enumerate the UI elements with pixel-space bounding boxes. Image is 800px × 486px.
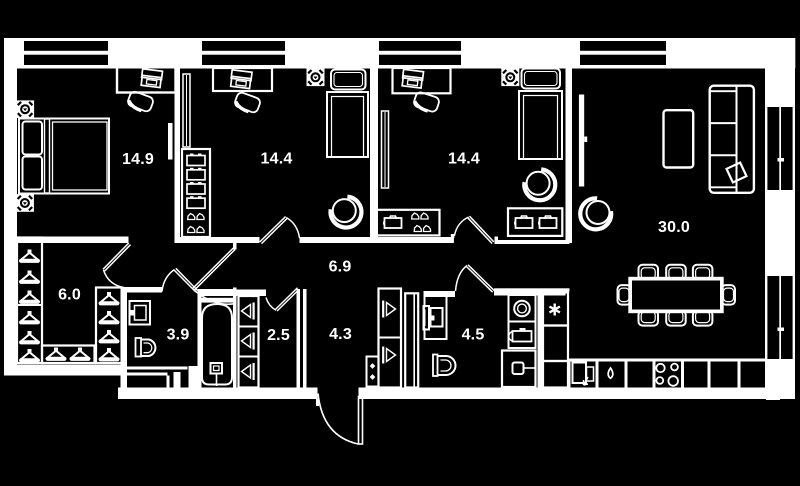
svg-text:3.9: 3.9	[167, 327, 190, 344]
svg-text:30.0: 30.0	[658, 219, 690, 236]
svg-text:4.3: 4.3	[329, 326, 352, 343]
svg-text:14.9: 14.9	[122, 151, 154, 168]
svg-text:4.5: 4.5	[462, 327, 485, 344]
svg-text:6.9: 6.9	[329, 259, 352, 276]
svg-text:6.0: 6.0	[58, 287, 81, 304]
svg-text:2.5: 2.5	[267, 327, 290, 344]
svg-text:14.4: 14.4	[261, 151, 293, 168]
svg-text:14.4: 14.4	[448, 151, 480, 168]
